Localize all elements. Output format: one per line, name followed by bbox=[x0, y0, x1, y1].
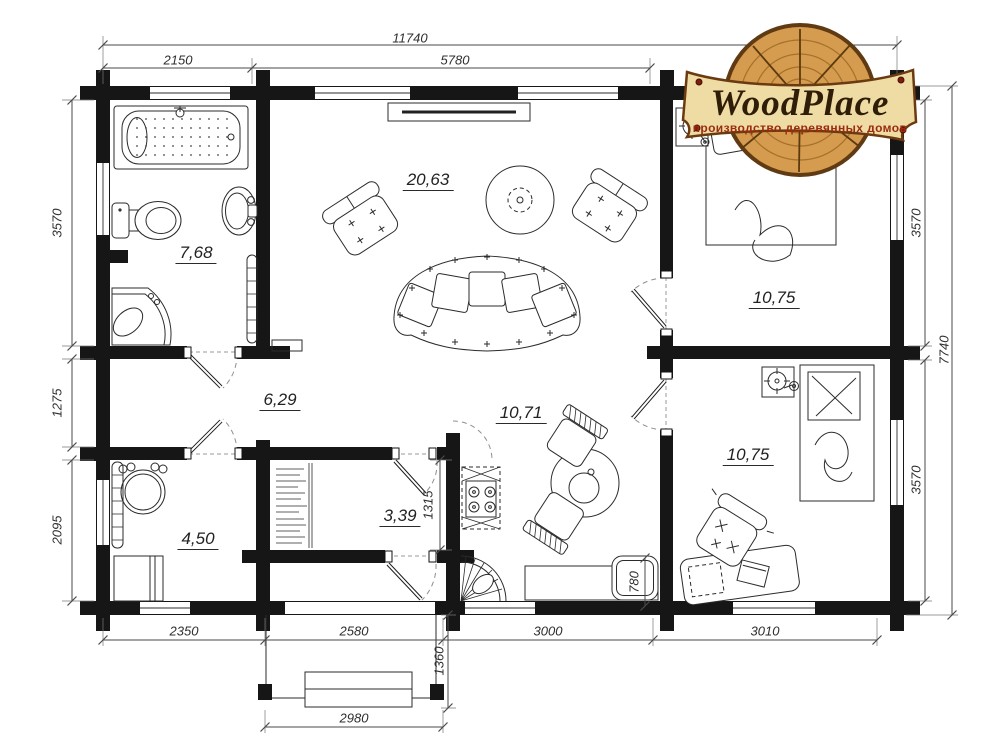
plan-drawing: WoodPlace производство деревянных домов bbox=[0, 0, 1000, 751]
dim-vestibule-depth: 780 bbox=[628, 571, 641, 593]
dim-bottom-2: 2580 bbox=[340, 625, 369, 638]
porch-step bbox=[305, 672, 412, 689]
nightstand bbox=[762, 367, 799, 397]
dim-bottom-3: 3000 bbox=[534, 625, 563, 638]
room-label-utility: 4,50 bbox=[177, 530, 218, 550]
dim-left-mid: 1275 bbox=[51, 389, 64, 418]
washing-machine bbox=[114, 556, 163, 601]
logo-subtitle: производство деревянных домов bbox=[693, 121, 908, 135]
dim-right-bottom: 3570 bbox=[910, 466, 923, 495]
wardrobe bbox=[276, 463, 312, 548]
room-label-hall: 6,29 bbox=[259, 391, 300, 411]
dim-left-top: 3570 bbox=[51, 209, 64, 238]
dim-bottom-4: 3010 bbox=[751, 625, 780, 638]
porch-step bbox=[305, 689, 412, 707]
coffee-table bbox=[486, 166, 554, 234]
table-lamp-icon bbox=[768, 372, 786, 390]
single-bed bbox=[800, 365, 874, 501]
room-label-living: 20,63 bbox=[403, 171, 454, 191]
porch-post bbox=[430, 684, 444, 700]
porch-post bbox=[258, 684, 272, 700]
dim-entry-depth: 1315 bbox=[422, 491, 435, 520]
dim-porch-width: 2980 bbox=[340, 712, 369, 725]
room-label-kitchen: 10,71 bbox=[496, 404, 547, 424]
dim-right-total: 7740 bbox=[938, 336, 951, 365]
logo-title: WoodPlace bbox=[711, 83, 890, 124]
room-label-bathroom: 7,68 bbox=[175, 244, 216, 264]
armchair bbox=[566, 166, 650, 247]
tv-console bbox=[388, 103, 530, 121]
corner-sink bbox=[461, 556, 506, 601]
dim-porch-depth: 1360 bbox=[433, 647, 446, 676]
dim-bottom-1: 2350 bbox=[170, 625, 199, 638]
toilet bbox=[112, 202, 181, 240]
floor-plan: WoodPlace производство деревянных домов … bbox=[0, 0, 1000, 751]
room-label-bedroom1: 10,75 bbox=[749, 289, 800, 309]
dim-top-total: 11740 bbox=[392, 32, 427, 45]
bathtub bbox=[114, 106, 248, 169]
dim-top-left: 2150 bbox=[164, 54, 193, 67]
stove bbox=[462, 467, 500, 529]
room-label-entry: 3,39 bbox=[379, 507, 420, 527]
dim-left-bottom: 2095 bbox=[51, 516, 64, 545]
sofa bbox=[394, 254, 580, 351]
washbasin bbox=[222, 187, 257, 235]
room-label-bedroom2: 10,75 bbox=[723, 446, 774, 466]
armchair bbox=[320, 179, 404, 260]
shower-cabin bbox=[108, 288, 171, 345]
towel-radiator bbox=[247, 255, 257, 343]
radiator bbox=[112, 462, 123, 548]
utility-sink bbox=[119, 463, 167, 514]
dim-right-top: 3570 bbox=[910, 209, 923, 238]
dim-top-mid: 5780 bbox=[441, 54, 470, 67]
